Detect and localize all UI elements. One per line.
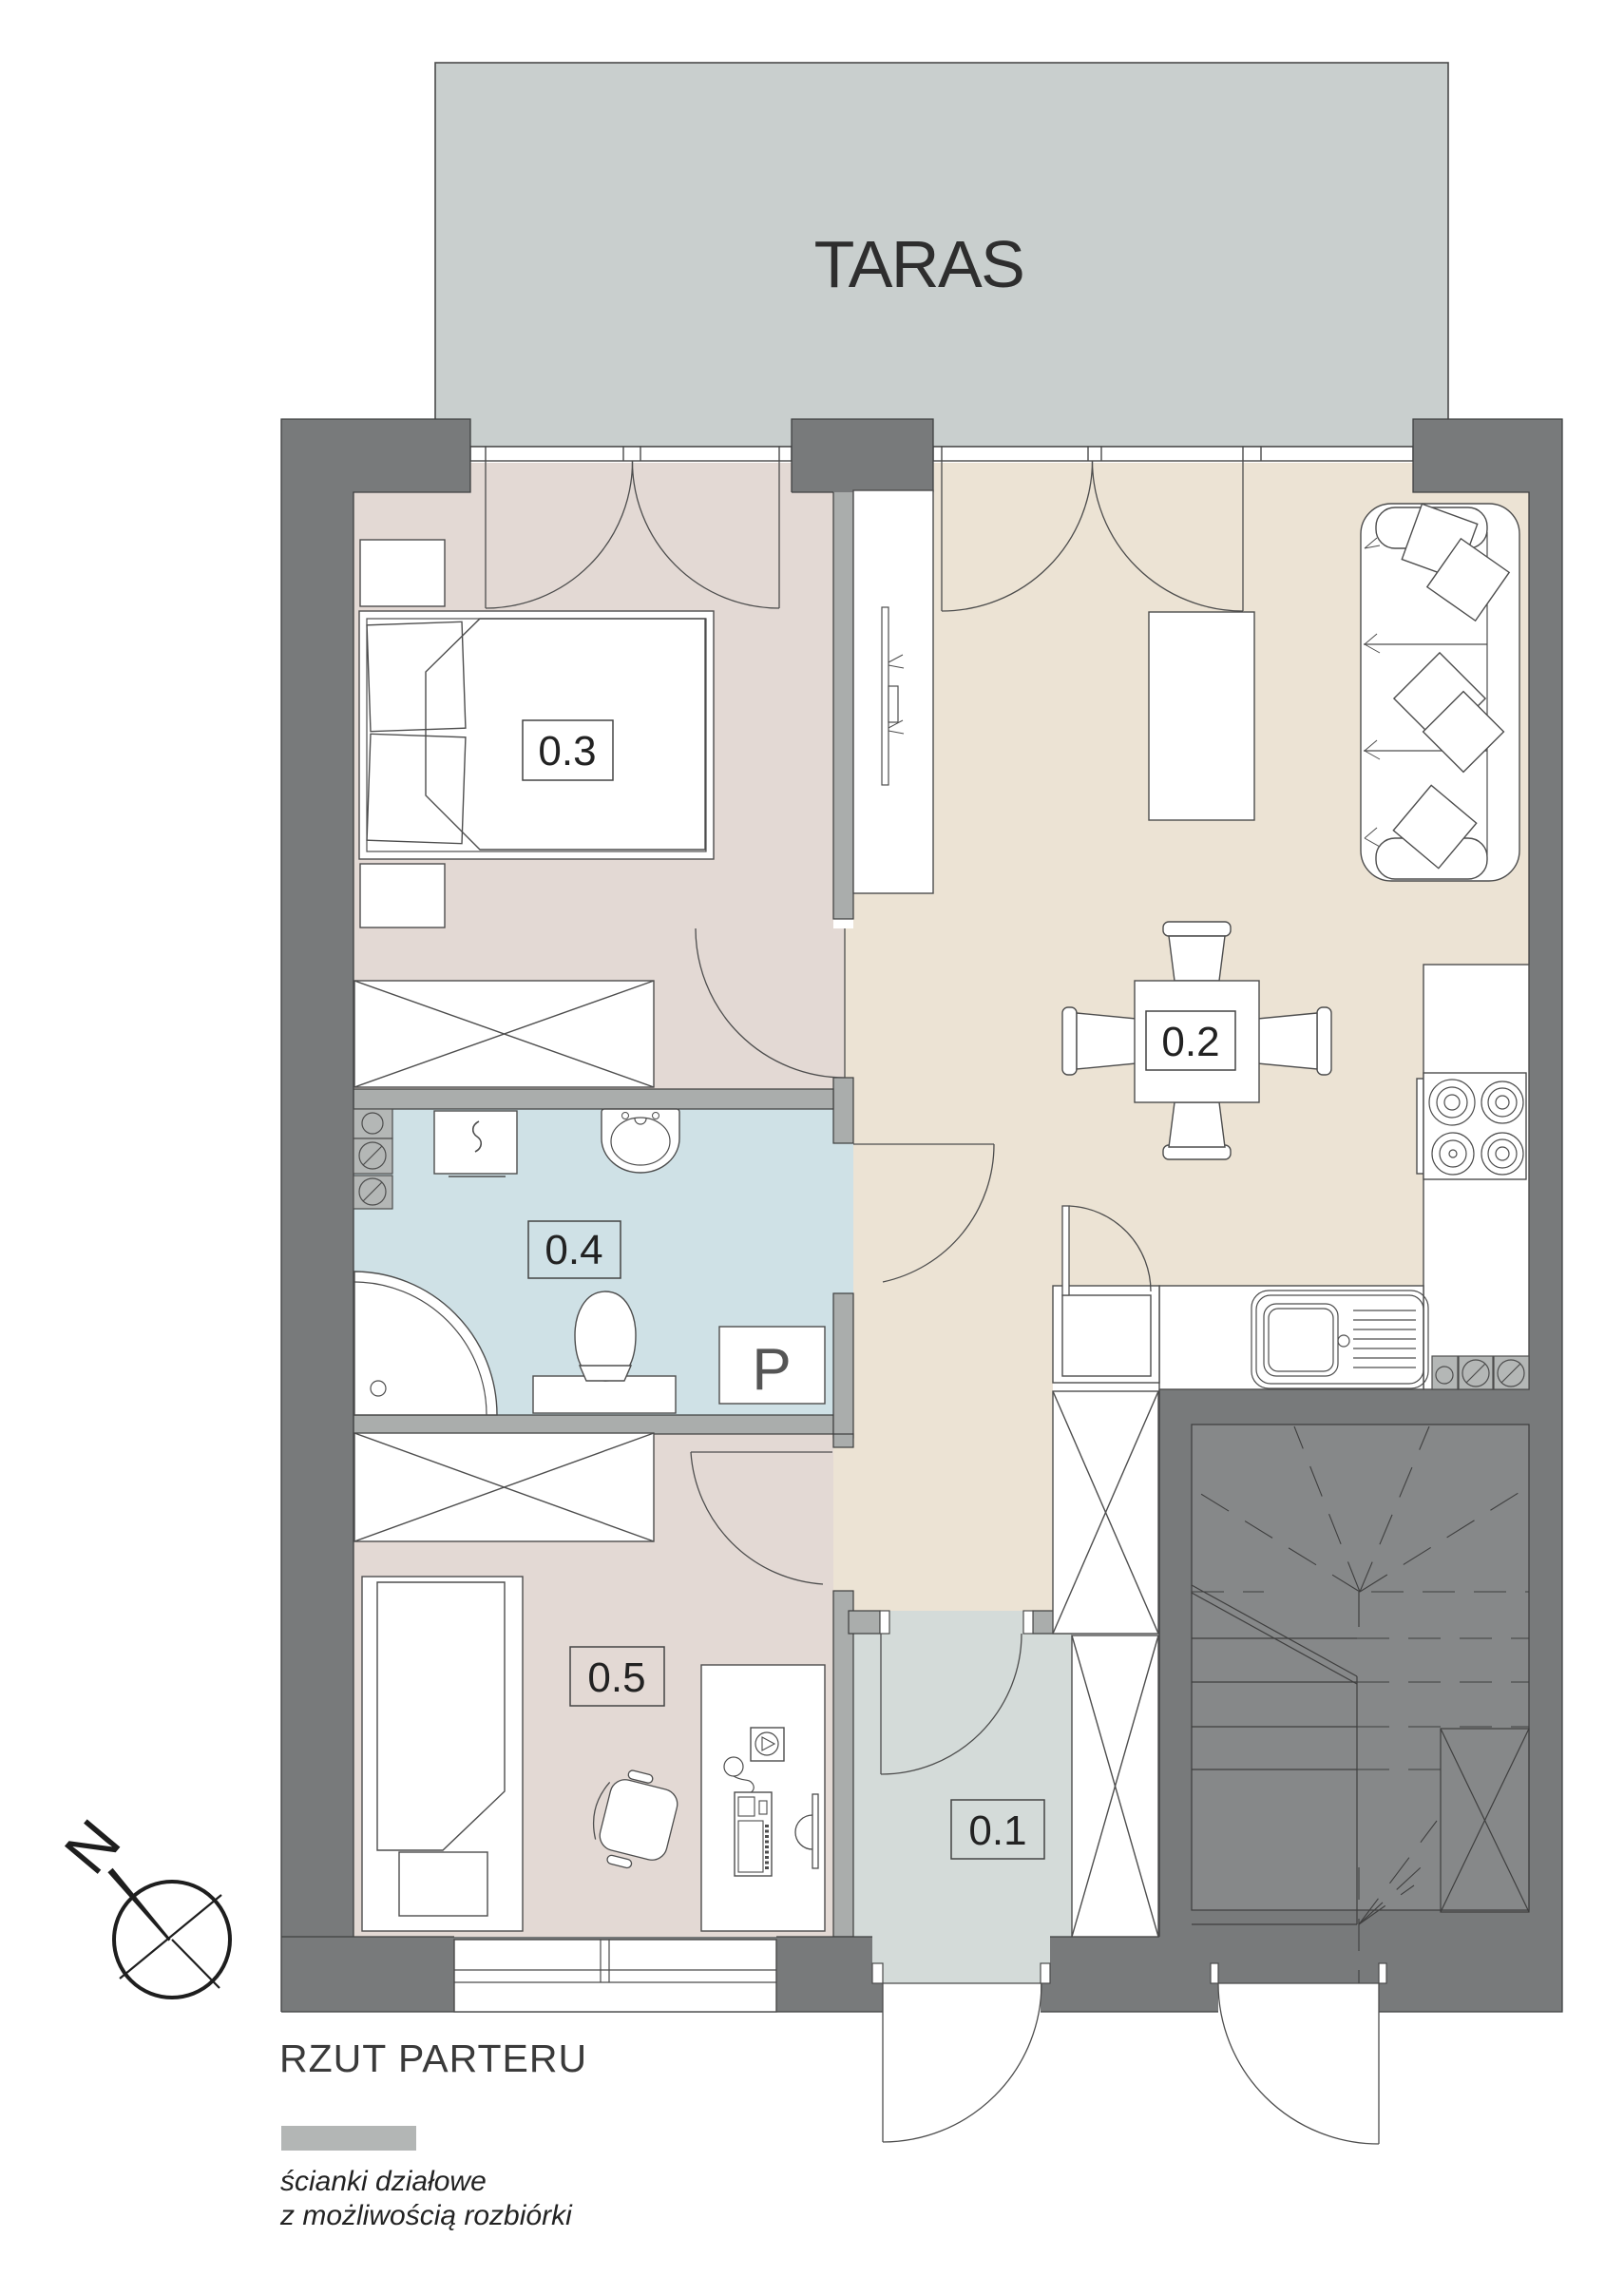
- svg-text:RZUT PARTERU: RZUT PARTERU: [279, 2037, 587, 2080]
- svg-text:0.5: 0.5: [587, 1654, 645, 1701]
- svg-text:0.4: 0.4: [545, 1227, 602, 1273]
- svg-text:TARAS: TARAS: [814, 227, 1024, 301]
- svg-text:0.3: 0.3: [538, 728, 596, 775]
- svg-text:P: P: [752, 1337, 791, 1403]
- svg-text:ścianki działowe: ścianki działowe: [280, 2166, 487, 2197]
- svg-text:0.1: 0.1: [968, 1807, 1026, 1854]
- svg-text:N: N: [50, 1807, 133, 1886]
- svg-text:0.2: 0.2: [1161, 1019, 1219, 1065]
- svg-text:z możliwością rozbiórki: z możliwością rozbiórki: [279, 2200, 573, 2231]
